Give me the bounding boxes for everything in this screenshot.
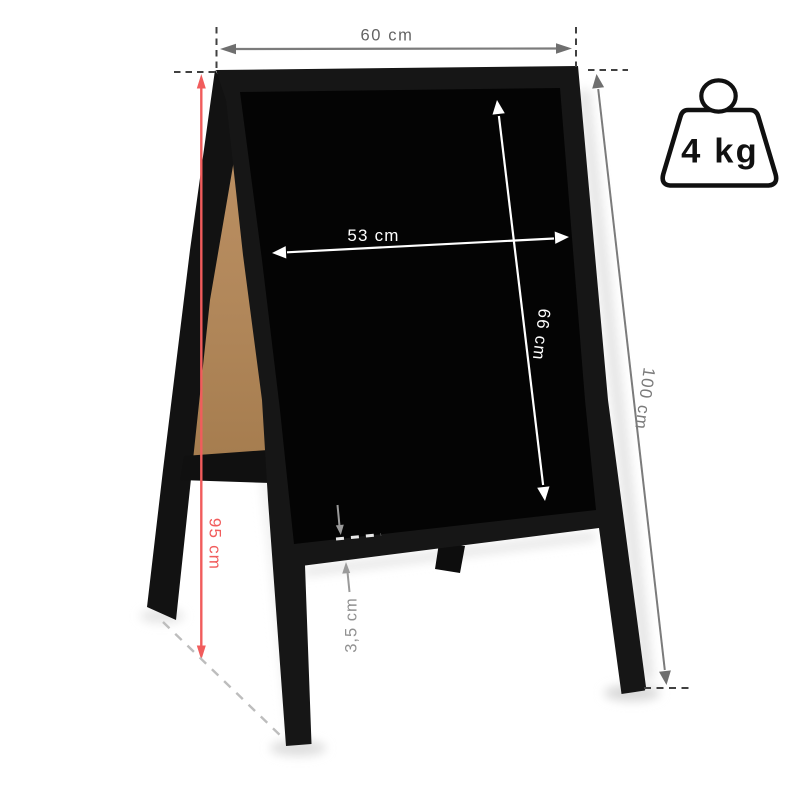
svg-text:60 cm: 60 cm: [361, 27, 414, 45]
svg-text:95 cm: 95 cm: [206, 518, 225, 570]
svg-text:3,5 cm: 3,5 cm: [343, 597, 361, 653]
svg-text:4 kg: 4 kg: [681, 133, 759, 171]
svg-text:53 cm: 53 cm: [347, 226, 399, 245]
